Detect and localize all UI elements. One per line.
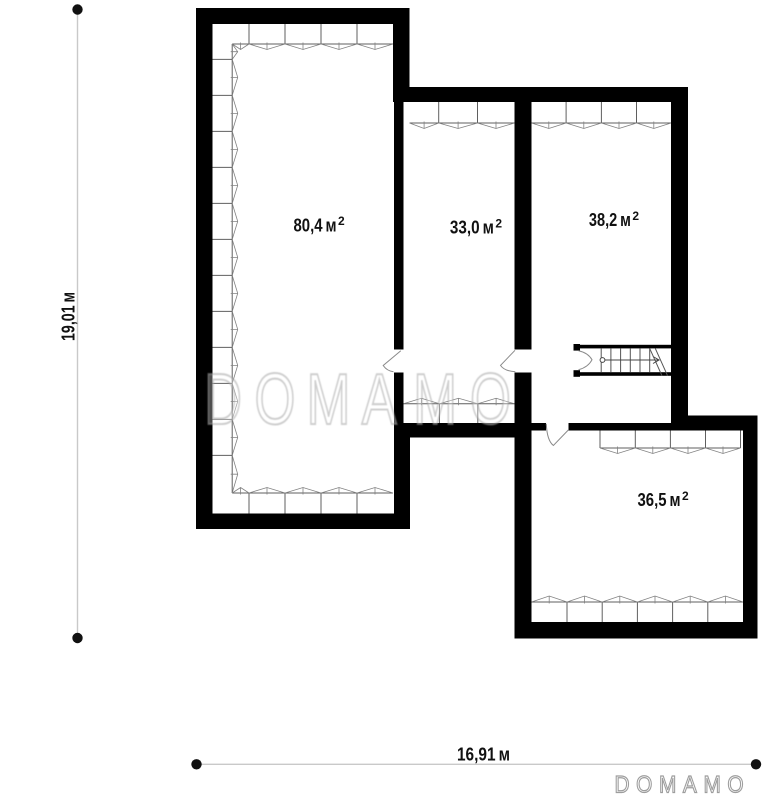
svg-text:A: A bbox=[362, 360, 397, 440]
svg-text:19,01 м: 19,01 м bbox=[59, 292, 79, 341]
svg-text:80,4 м: 80,4 м bbox=[294, 215, 337, 235]
svg-text:33,0 м: 33,0 м bbox=[450, 218, 494, 238]
svg-text:2: 2 bbox=[338, 214, 345, 228]
svg-text:2: 2 bbox=[495, 216, 502, 230]
svg-text:36,5 м: 36,5 м bbox=[638, 490, 681, 510]
svg-text:D: D bbox=[204, 360, 242, 440]
svg-text:2: 2 bbox=[632, 209, 639, 223]
svg-text:O: O bbox=[470, 360, 511, 440]
svg-text:2: 2 bbox=[682, 489, 689, 503]
svg-text:16,91 м: 16,91 м bbox=[457, 744, 510, 764]
svg-text:M: M bbox=[413, 360, 457, 440]
svg-text:O: O bbox=[255, 360, 296, 440]
svg-text:38,2 м: 38,2 м bbox=[589, 210, 631, 230]
svg-text:M: M bbox=[307, 360, 351, 440]
svg-text:DOMAMO: DOMAMO bbox=[615, 770, 751, 798]
